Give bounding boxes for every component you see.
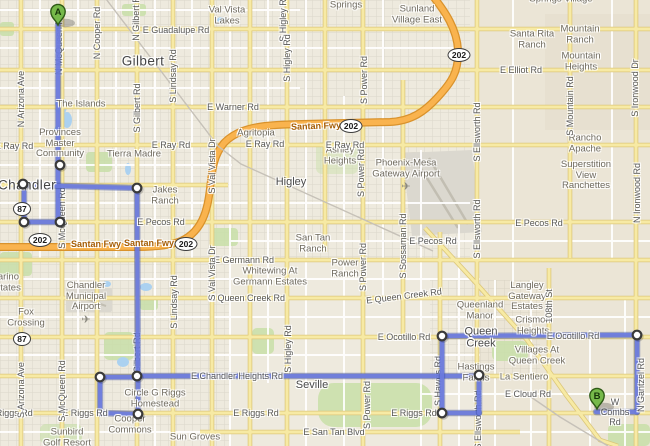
route-waypoint-marker[interactable] xyxy=(438,409,447,418)
pin-letter: B xyxy=(594,391,601,402)
markers-overlay: AB xyxy=(0,0,650,446)
route-waypoint-marker[interactable] xyxy=(133,184,142,193)
pin-letter: A xyxy=(55,7,62,18)
route-waypoint-marker[interactable] xyxy=(475,371,484,380)
route-waypoint-marker[interactable] xyxy=(56,161,65,170)
route-waypoint-marker[interactable] xyxy=(134,410,143,419)
route-waypoint-marker[interactable] xyxy=(133,372,142,381)
route-waypoint-marker[interactable] xyxy=(438,332,447,341)
map-canvas[interactable]: S Gilbert RdS Ellsworth RdS Hawes RdN Mc… xyxy=(0,0,650,446)
route-waypoint-marker[interactable] xyxy=(96,373,105,382)
route-waypoint-marker[interactable] xyxy=(20,218,29,227)
route-waypoint-marker[interactable] xyxy=(19,180,28,189)
start-marker-pin[interactable]: A xyxy=(51,4,75,27)
end-marker-pin[interactable]: B xyxy=(590,388,614,411)
route-waypoint-marker[interactable] xyxy=(56,218,65,227)
route-waypoint-marker[interactable] xyxy=(633,331,642,340)
